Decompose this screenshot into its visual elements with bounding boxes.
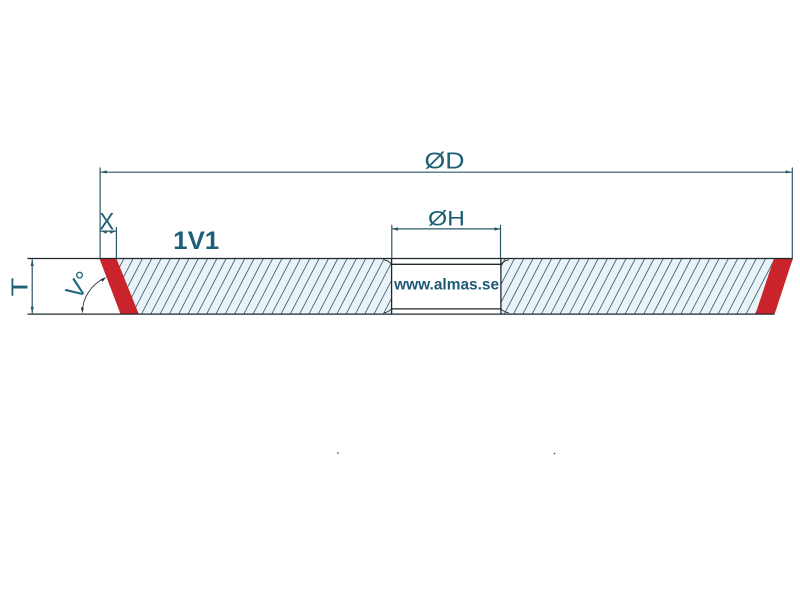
- svg-text:T: T: [7, 278, 33, 297]
- svg-text:ØD: ØD: [425, 148, 465, 174]
- svg-text:1V1: 1V1: [173, 227, 219, 255]
- svg-text:www.almas.se: www.almas.se: [393, 276, 499, 293]
- svg-text:ØH: ØH: [428, 207, 465, 231]
